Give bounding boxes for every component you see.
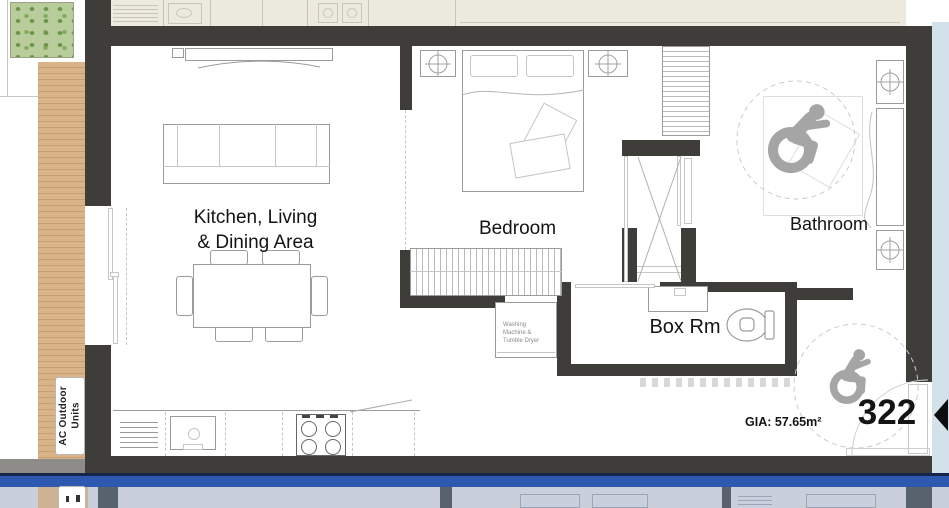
shower-tray	[876, 108, 904, 226]
sofa-cushion-line	[275, 124, 276, 166]
nightstand	[588, 50, 628, 77]
hob-knob	[302, 415, 310, 418]
dim-wall	[440, 487, 452, 508]
hob-knob	[316, 415, 324, 418]
linen-store	[662, 46, 710, 136]
sliding-door-pane	[108, 208, 113, 280]
dining-chair	[311, 276, 328, 316]
room-label-bedroom: Bedroom	[455, 217, 580, 242]
sliding-door-handle	[110, 272, 119, 277]
dim-wall	[906, 487, 932, 508]
threshold-grille	[640, 378, 790, 387]
neighbor-divider	[210, 0, 211, 26]
ac-units-label-text: AC Outdoor Units	[58, 386, 83, 446]
tv-unit	[172, 48, 184, 58]
neighbor-divider	[368, 0, 369, 26]
wardrobe	[410, 248, 562, 296]
wall-shaft-se	[681, 228, 696, 282]
sofa	[163, 124, 330, 184]
shaft-line	[637, 266, 681, 267]
neighbor-divider	[163, 0, 164, 26]
wall-bottom	[85, 456, 932, 473]
counter-divider	[352, 412, 353, 456]
sofa-cushion-line	[219, 124, 220, 166]
boxrm-door-leaf	[575, 284, 655, 288]
wardrobe-rail	[410, 271, 562, 272]
dim-furniture	[806, 494, 876, 508]
tv-shelf	[185, 48, 333, 61]
door-clearance-line	[126, 208, 127, 345]
wall-right	[906, 26, 932, 382]
dim-wall	[98, 487, 118, 508]
site-line	[7, 0, 8, 96]
room-label-box-rm: Box Rm	[635, 314, 735, 340]
washbasin-faucet	[674, 288, 686, 296]
dining-chair	[215, 326, 253, 342]
utility-closet-line	[497, 352, 555, 353]
dim-appliance	[738, 493, 772, 505]
sofa-arm-line	[177, 124, 178, 166]
neighbor-hob-ring	[347, 8, 357, 18]
room-label-kitchen-living: Kitchen, Living & Dining Area	[148, 206, 363, 255]
dim-furniture	[592, 494, 648, 508]
dining-table	[193, 264, 311, 328]
counter-divider	[282, 412, 283, 456]
unit-number: 322	[850, 394, 924, 433]
shower-fixture	[876, 60, 904, 104]
counter-divider	[165, 412, 166, 456]
kitchen-appliance	[120, 418, 158, 448]
entry-arrow-icon	[934, 399, 948, 431]
utility-label: Washing Machine & Tumble Dryer	[497, 322, 555, 345]
bathroom-door-leaf	[684, 158, 692, 224]
counter-divider	[414, 412, 415, 456]
wall-shaft-north	[622, 140, 700, 156]
wall-boxrm-south	[557, 364, 797, 376]
dim-letter-mark	[66, 496, 69, 502]
kitchen-faucet	[183, 444, 203, 450]
hob-knob	[330, 415, 338, 418]
dim-ac-units-label	[58, 486, 86, 508]
nightstand	[420, 50, 456, 77]
tv-soundbar-curve	[198, 61, 320, 68]
wall-shadow	[0, 459, 85, 473]
site-line	[0, 96, 38, 97]
floor-divider-band-edge	[0, 473, 949, 476]
entry-threshold	[846, 448, 930, 456]
ac-units-label: AC Outdoor Units	[55, 377, 85, 455]
room-divider-line	[405, 110, 406, 250]
wall-partition-living	[400, 46, 412, 110]
neighbor-hob-ring	[323, 8, 333, 18]
pillow	[470, 55, 518, 77]
kitchen-sink-bowl	[188, 428, 200, 440]
pillow	[526, 55, 574, 77]
gia-label: GIA: 57.65m²	[745, 414, 857, 430]
neighbor-counter-edge	[460, 22, 900, 23]
shower-curtain-curve	[865, 112, 874, 228]
wall-bathroom-south	[785, 288, 853, 300]
sofa-back-line	[163, 166, 330, 167]
kitchen-hob	[296, 414, 346, 456]
planting-bed	[10, 2, 74, 58]
shaft-x-brace	[638, 157, 681, 281]
shaft-liner	[677, 156, 681, 226]
floor-plan: Kitchen, Living & Dining Area Bedroom Ba…	[0, 0, 949, 508]
dim-furniture	[520, 494, 580, 508]
wall-top	[111, 26, 932, 46]
neighbor-divider	[307, 0, 308, 26]
sofa-arm-line	[316, 124, 317, 166]
dining-chair	[265, 326, 303, 342]
neighbor-sink-bowl	[176, 8, 192, 18]
room-label-bathroom: Bathroom	[768, 213, 890, 236]
dim-wall	[722, 487, 731, 508]
dining-chair	[176, 276, 193, 316]
wall-left-upper	[85, 0, 111, 206]
kitchen-counter-edge	[113, 410, 420, 411]
sliding-door-pane	[113, 276, 118, 344]
wall-bedroom-south	[400, 296, 505, 308]
neighbor-divider	[262, 0, 263, 26]
shaft-line	[637, 272, 681, 273]
neighbor-appliance	[113, 2, 158, 24]
counter-divider	[225, 412, 226, 456]
dim-letter-mark	[76, 495, 80, 502]
shaft-liner	[624, 156, 628, 282]
wall-left-lower	[85, 345, 111, 457]
neighbor-divider	[455, 0, 456, 26]
